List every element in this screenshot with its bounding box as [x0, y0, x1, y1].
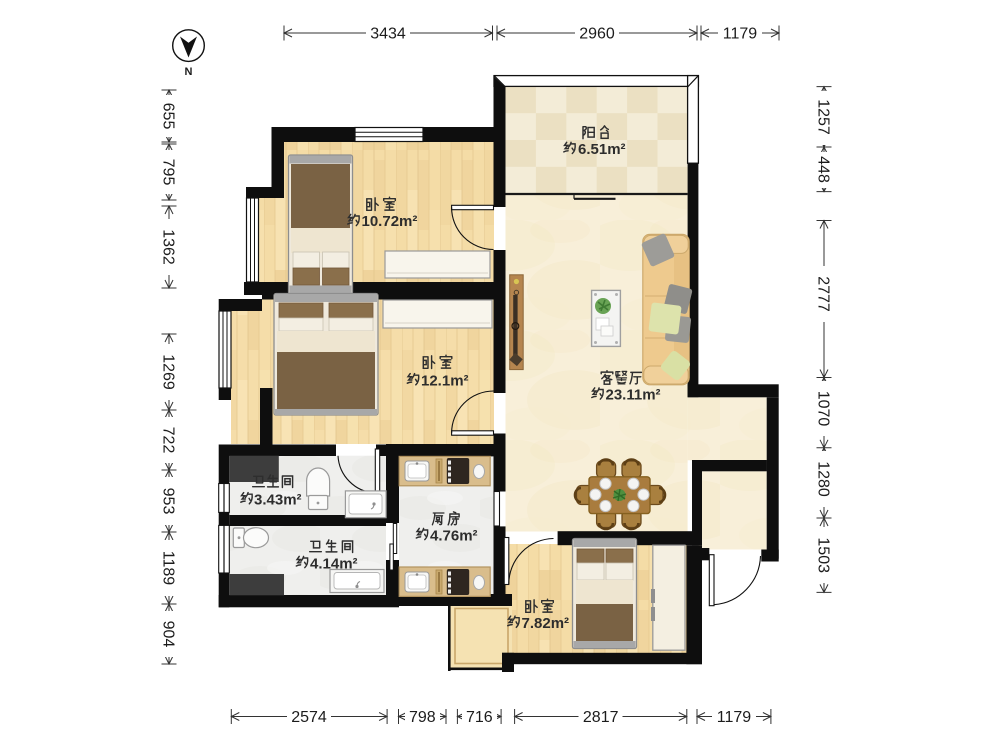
- svg-text:448: 448: [815, 156, 832, 183]
- svg-text:3434: 3434: [370, 26, 406, 43]
- svg-text:7.82m²: 7.82m²: [522, 615, 570, 632]
- svg-text:23.11m²: 23.11m²: [606, 387, 661, 404]
- svg-text:3.43m²: 3.43m²: [254, 492, 302, 509]
- svg-text:4.14m²: 4.14m²: [310, 556, 358, 573]
- svg-text:1257: 1257: [815, 99, 832, 135]
- svg-text:2777: 2777: [815, 276, 832, 312]
- svg-text:2817: 2817: [583, 709, 619, 726]
- svg-text:6.51m²: 6.51m²: [578, 141, 626, 158]
- svg-text:12.1m²: 12.1m²: [421, 373, 469, 390]
- svg-text:1280: 1280: [815, 461, 832, 497]
- svg-text:1189: 1189: [160, 551, 177, 586]
- svg-text:1503: 1503: [815, 537, 832, 573]
- svg-text:795: 795: [160, 159, 177, 186]
- svg-text:1362: 1362: [160, 229, 177, 265]
- svg-text:1179: 1179: [717, 709, 752, 726]
- svg-text:2574: 2574: [291, 709, 327, 726]
- svg-text:722: 722: [160, 427, 177, 454]
- svg-text:798: 798: [409, 709, 436, 726]
- svg-text:655: 655: [160, 103, 177, 130]
- svg-text:1179: 1179: [723, 26, 758, 43]
- svg-text:10.72m²: 10.72m²: [362, 213, 418, 230]
- svg-text:4.76m²: 4.76m²: [430, 528, 478, 545]
- svg-text:2960: 2960: [579, 26, 615, 43]
- svg-text:1269: 1269: [160, 354, 177, 390]
- svg-text:953: 953: [160, 488, 177, 515]
- svg-text:1070: 1070: [815, 391, 832, 427]
- svg-text:904: 904: [160, 621, 177, 648]
- svg-text:716: 716: [466, 709, 493, 726]
- svg-text:N: N: [185, 66, 193, 78]
